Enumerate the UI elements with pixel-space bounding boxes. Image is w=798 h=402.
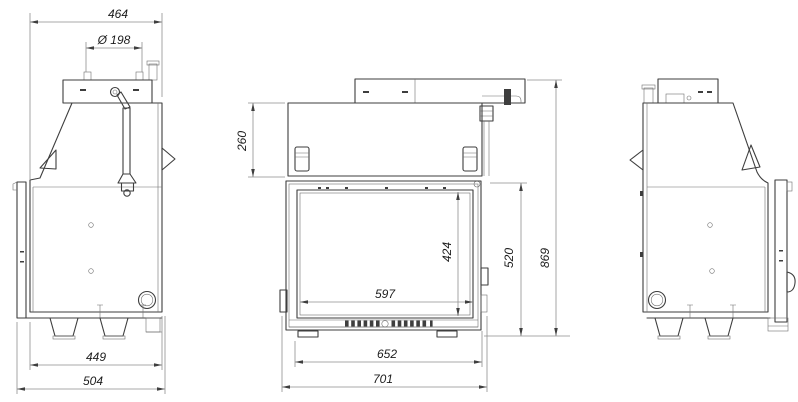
dim-body-depth: 449 [30,316,162,370]
vent-circle [382,321,388,327]
flue-collar [84,72,143,80]
top-mounting-box-left-view [63,80,152,103]
dim-glass-height-label: 424 [440,242,454,262]
base-feet-front-view [298,331,457,337]
screw-hole [710,269,715,274]
dim-glass-height: 424 [440,192,460,316]
drawing-canvas: 464 Ø 198 449 504 [0,0,798,402]
door-hook-left-view [13,182,17,190]
dim-firebox-height: 520 [484,183,570,336]
rear-stub-right-view [642,85,655,103]
front-view [280,79,525,337]
rear-stub-left-view [147,61,159,80]
body-outline-right-view [643,103,768,312]
dim-overall-height-label: 869 [538,248,552,268]
door-handle-right-view [787,272,795,292]
screw-hole [89,269,94,274]
dim-flue-diameter-label: Ø 198 [97,33,131,47]
lifting-bracket-rear-left-view [162,148,175,170]
dim-glass-width: 597 [300,287,473,304]
vent-grille [289,320,478,327]
lifting-bracket-rear-right-view [630,150,643,170]
lifting-bracket-front-left-view [40,150,56,169]
dim-flue-diameter: Ø 198 [86,33,142,72]
hood-panel [288,103,482,176]
glass-top-screws [318,187,446,189]
left-side-view [13,61,175,339]
technical-drawing: 464 Ø 198 449 504 [0,0,798,402]
dim-firebox-height-label: 520 [502,248,516,268]
dim-body-width-label: 652 [377,347,397,361]
top-mounting-box-right-view [658,79,718,103]
screw-hole [708,223,713,228]
dim-overall-depth-top-label: 464 [108,7,128,21]
door-edge-left-view [13,182,26,318]
base-legs-left-view [50,318,162,339]
right-side-view [630,79,795,339]
hood-clip-left [295,147,309,171]
dim-body-width: 652 [295,331,482,367]
top-mounting-box-front-view [355,79,525,103]
dim-body-depth-label: 449 [86,350,106,364]
flue-pipe-front-view [480,89,521,176]
lifting-bracket-front-right-view [742,145,760,170]
dim-hood-height-label: 260 [235,131,249,152]
base-legs-right-view [655,318,788,339]
damper-lever [111,88,137,197]
door-edge-right-view [775,180,795,322]
dim-overall-height: 869 [527,80,562,336]
dim-hood-height: 260 [235,103,285,177]
connection-port-right-view [649,292,666,309]
dim-overall-depth-label: 504 [83,374,103,388]
connection-port-left-view [139,292,156,309]
dim-glass-width-label: 597 [375,287,396,301]
door-handle-front-view [481,268,488,285]
hood-clip-right [463,147,477,171]
body-outline-left-view [30,103,162,312]
latch-tab-right [481,295,487,312]
dim-overall-width-label: 701 [373,372,393,386]
screw-hole [89,223,94,228]
